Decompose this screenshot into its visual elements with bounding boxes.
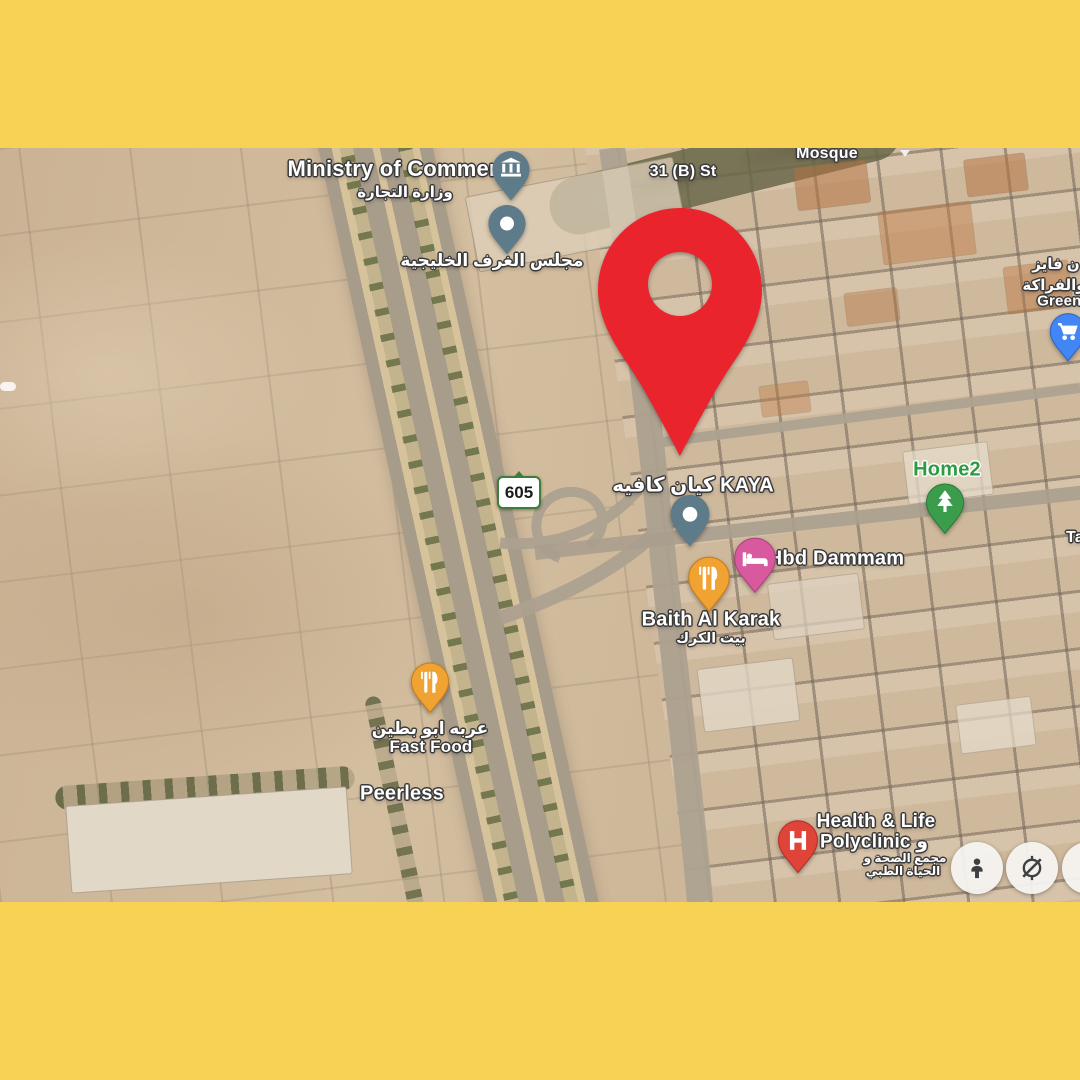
- building-block: [767, 573, 865, 641]
- mosque-label[interactable]: Mosque: [796, 148, 858, 163]
- ta-partial-street-label: Ta: [1066, 529, 1080, 547]
- kaya-pin dot-icon[interactable]: [668, 493, 712, 548]
- ministry-pin govt-building-icon[interactable]: [490, 149, 532, 202]
- health-polyclinic-pin hospital-icon[interactable]: [776, 819, 820, 874]
- route-605-shield: 605: [497, 476, 541, 509]
- ministry-of-commerce-label-ar[interactable]: وزارة التجارة: [357, 183, 453, 201]
- gulf-chambers-pin dot-icon[interactable]: [486, 203, 528, 256]
- health-life-label-ar2[interactable]: الحياة الطبي: [866, 864, 940, 878]
- fastfood-label-ar[interactable]: عربه ابو بطين: [372, 719, 488, 739]
- peerless-label[interactable]: Peerless: [360, 783, 444, 806]
- home2-pin tree-icon[interactable]: [924, 482, 966, 535]
- building-block: [843, 287, 901, 327]
- hbd-dammam-pin bed-icon[interactable]: [732, 536, 778, 594]
- person-icon: [964, 855, 990, 881]
- greengrocery-label-ar2[interactable]: والفراكة: [1022, 276, 1080, 294]
- building-block: [696, 657, 800, 732]
- greengrocery-label-ar1[interactable]: ن فايز: [1032, 255, 1079, 273]
- satellite-map[interactable]: Ministry of Commerce وزارة التجارة مجلس …: [0, 148, 1080, 902]
- fastfood-label-en[interactable]: Fast Food: [389, 737, 472, 757]
- compass-icon: [1018, 854, 1046, 882]
- route-605-number: 605: [505, 483, 533, 503]
- building-block: [963, 152, 1029, 197]
- ministry-of-commerce-label[interactable]: Ministry of Commerce: [287, 156, 522, 182]
- building-block: [793, 159, 872, 212]
- greengrocery-pin cart-icon[interactable]: [1048, 312, 1080, 362]
- building-block: [758, 380, 812, 418]
- baith-al-karak-pin restaurant-icon[interactable]: [686, 555, 732, 613]
- building-block: [955, 696, 1037, 755]
- fastfood-pin restaurant-icon[interactable]: [409, 661, 451, 714]
- health-life-label-ar1[interactable]: مجمع الصحة و: [864, 851, 947, 865]
- greengrocery-label-en[interactable]: Greeng: [1037, 293, 1080, 310]
- poster-canvas: Ministry of Commerce وزارة التجارة مجلس …: [0, 0, 1080, 1080]
- pegman-button[interactable]: [951, 842, 1003, 894]
- hbd-dammam-label[interactable]: Hbd Dammam: [768, 548, 904, 571]
- street-31b-label: 31 (B) St: [650, 163, 717, 181]
- red-location-pin[interactable]: [598, 208, 762, 456]
- compass-reset-button[interactable]: [1006, 842, 1058, 894]
- home2-label[interactable]: Home2: [913, 459, 981, 482]
- clipped-pin-tip: [900, 150, 910, 157]
- building-block: [877, 200, 977, 265]
- partial-label: [0, 382, 16, 391]
- baith-al-karak-label-ar[interactable]: بيت الكرك: [676, 630, 745, 647]
